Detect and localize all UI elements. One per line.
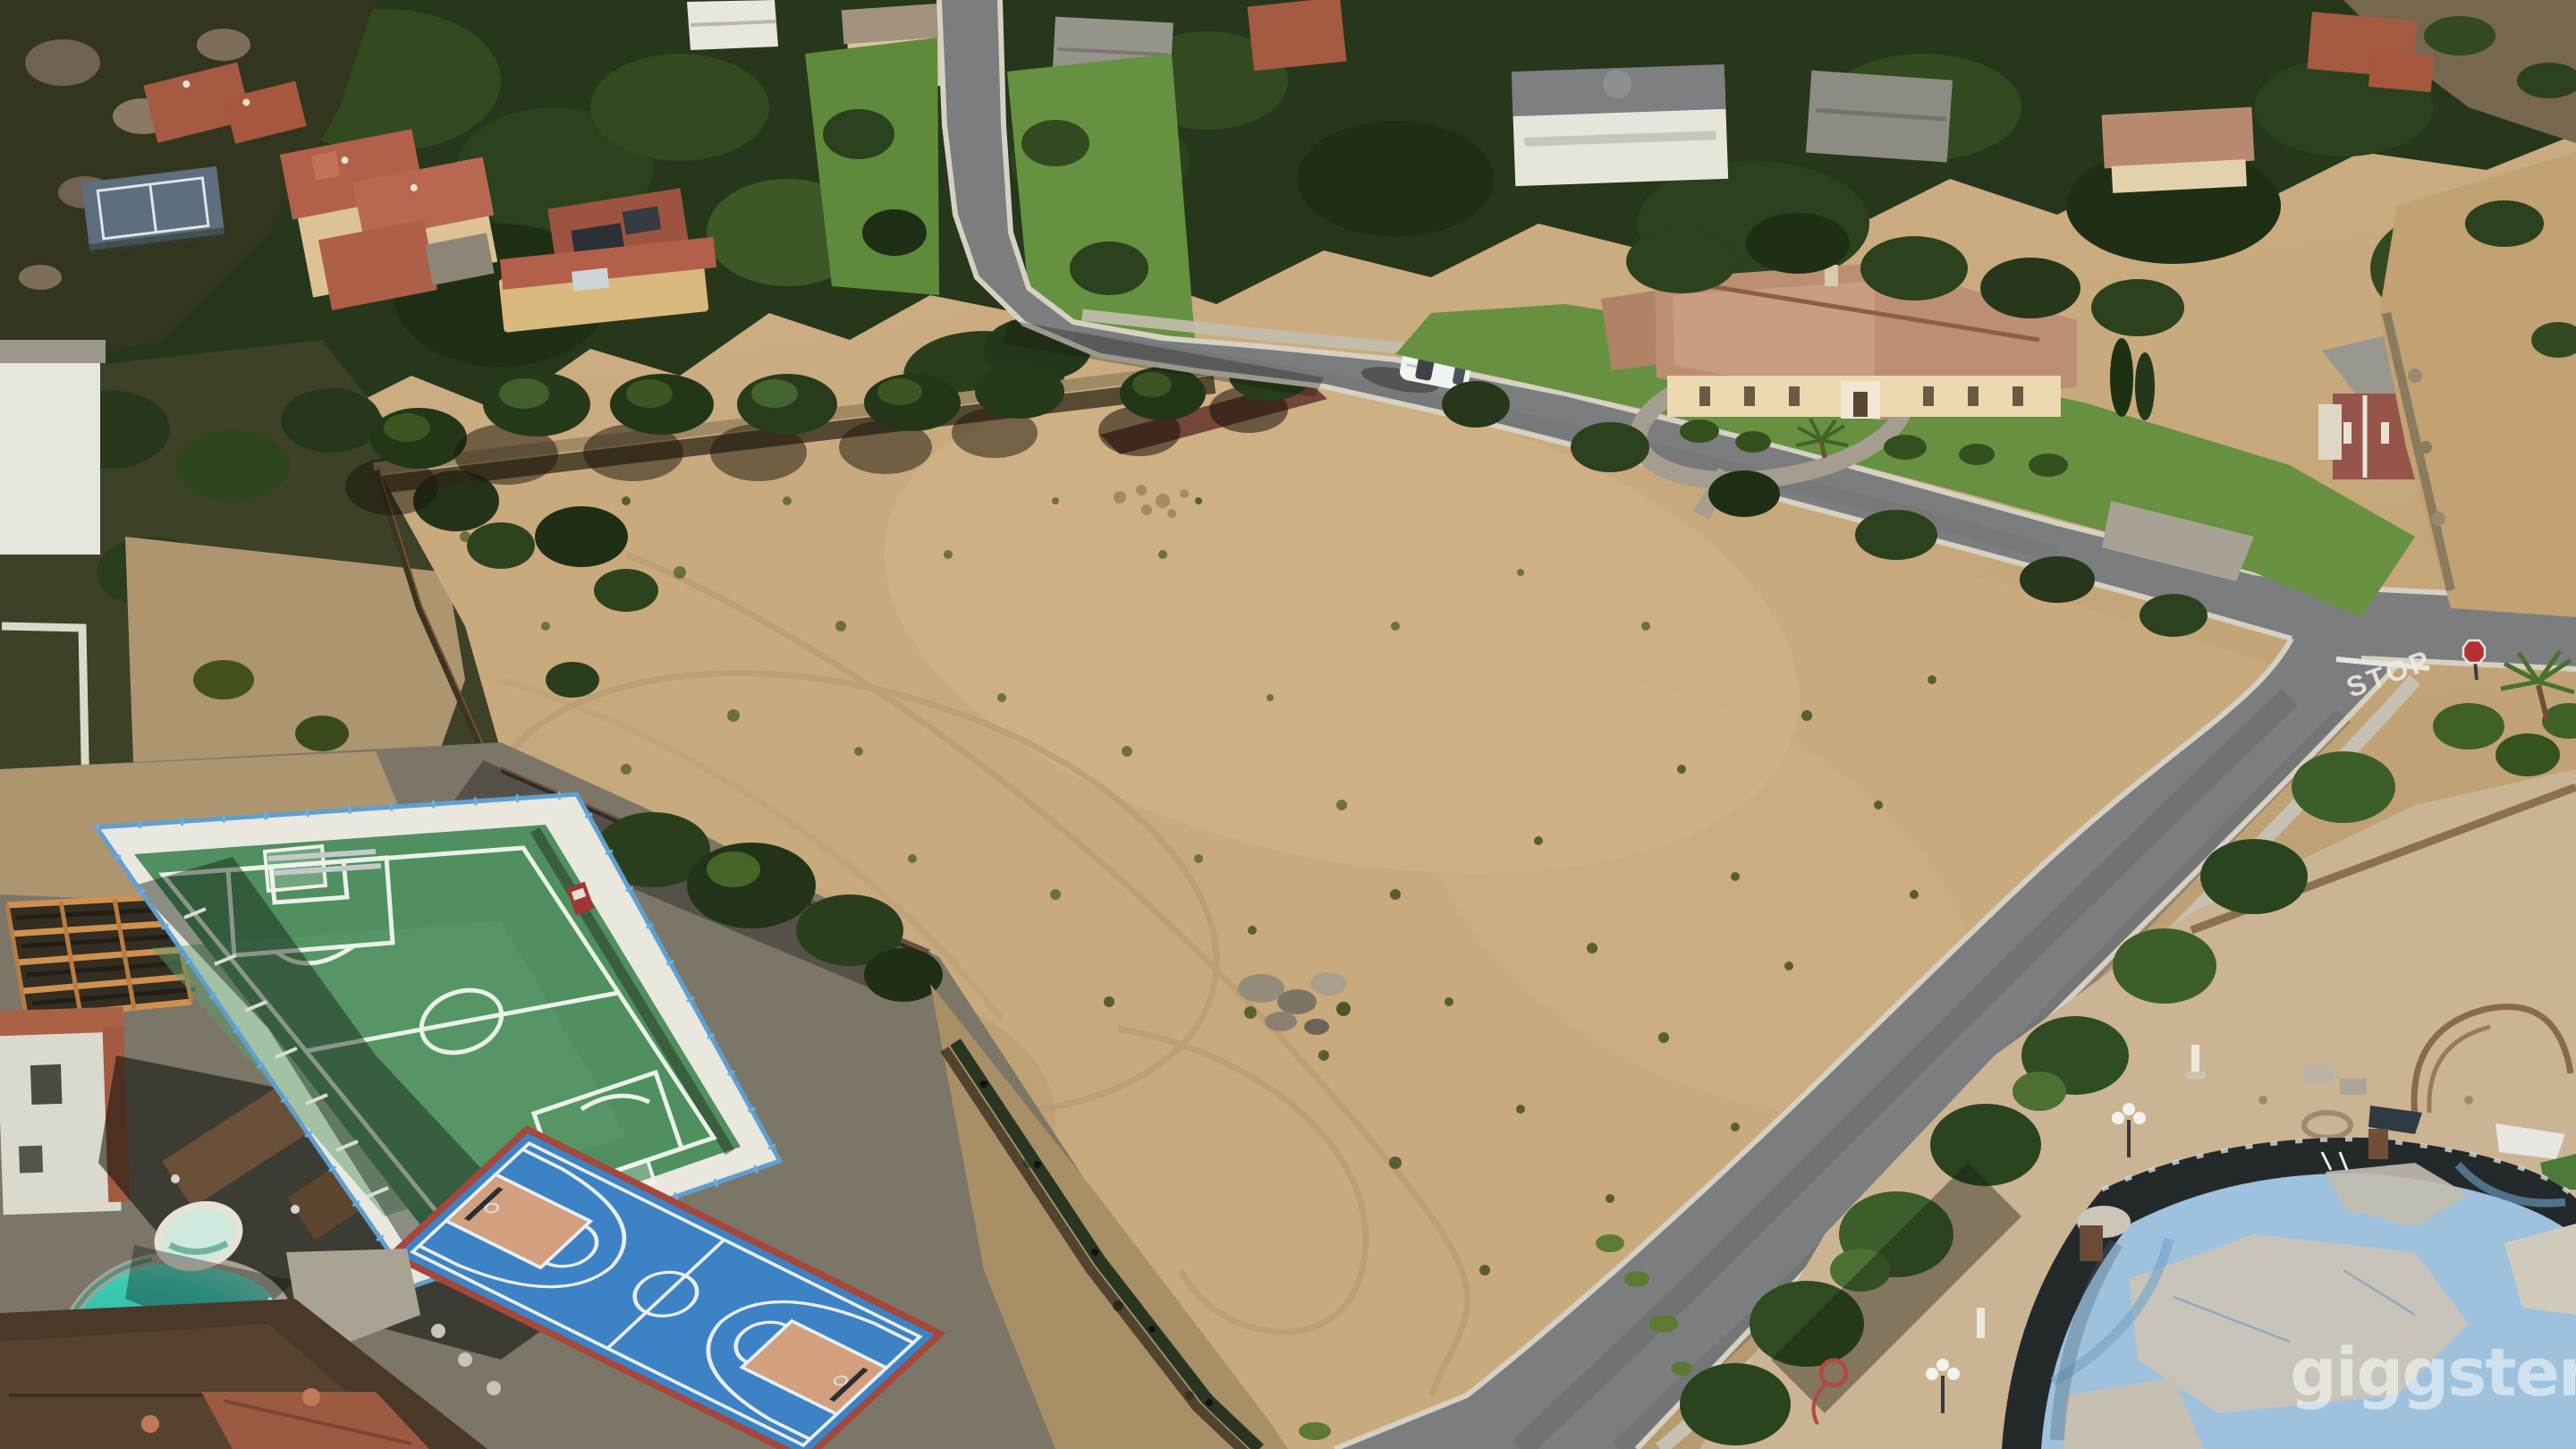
red-roof-house-top — [1248, 0, 1347, 71]
brown-pillar-1 — [2080, 1225, 2103, 1261]
brown-pillar-2 — [2368, 1129, 2388, 1159]
gray-mansion-top-right — [1806, 71, 1953, 163]
garden-statue — [2191, 1045, 2199, 1073]
tan-house-top-right — [2102, 107, 2256, 194]
white-gable-house-top — [687, 0, 778, 50]
aerial-photo: STOP — [0, 0, 2576, 1449]
white-mansion-top-right — [1512, 64, 1728, 186]
watermark-logo: giggster — [2290, 1335, 2576, 1411]
garden-statue-2 — [1977, 1308, 1985, 1338]
white-building-left-edge — [0, 349, 100, 555]
